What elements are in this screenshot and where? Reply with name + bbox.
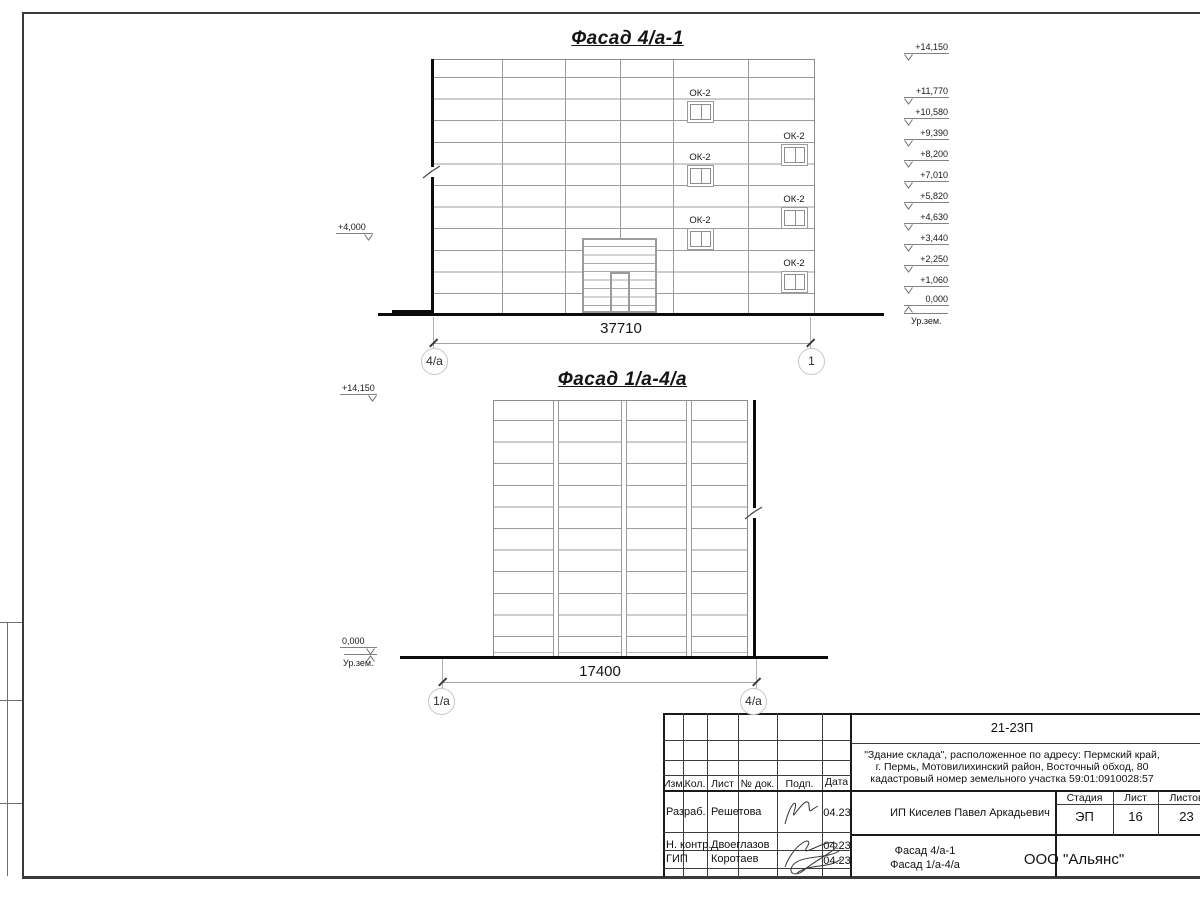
titleblock-border — [663, 713, 665, 877]
person-name: Решетова — [711, 806, 761, 818]
elevation-mark: 0,000 — [904, 293, 949, 306]
elevation-arrow-icon — [904, 119, 913, 126]
grid-line — [673, 60, 674, 313]
elevation-mark: +4,630 — [904, 211, 949, 224]
project-code: 21-23П — [851, 720, 1173, 735]
elevation-mark: +8,200 — [904, 148, 949, 161]
elevation-arrow-icon — [904, 98, 913, 105]
address-line: "Здание склада", расположенное по адресу… — [853, 749, 1171, 761]
elevation-arrow-icon — [904, 182, 913, 189]
elevation-mark: +9,390 — [904, 127, 949, 140]
dimension-text: 17400 — [540, 663, 660, 680]
elevation-arrow-icon — [904, 245, 913, 252]
sheet-label: Лист — [1113, 792, 1158, 804]
elevation-mark: +14,150 — [340, 382, 377, 395]
elevation-arrow-icon — [904, 140, 913, 147]
grid-line — [502, 60, 503, 313]
sheet-frame-left — [22, 12, 24, 878]
col-header: № док. — [738, 778, 777, 790]
date: 04.23 — [823, 807, 851, 819]
axis-bubble: 4/а — [740, 688, 767, 715]
window-tag: ОК-2 — [683, 152, 717, 163]
elevation-mark: +1,060 — [904, 274, 949, 287]
elevation-arrow-icon — [368, 395, 377, 402]
elevation-arrow-icon — [364, 234, 373, 241]
titleblock-line — [851, 743, 1200, 744]
pilaster — [686, 401, 692, 656]
margin-stamp-line — [0, 622, 22, 623]
axis-bubble: 1/а — [428, 688, 455, 715]
col-header: Лист — [707, 778, 738, 790]
stage-label: Стадия — [1056, 792, 1113, 804]
window-tag: ОК-2 — [683, 88, 717, 99]
role-label: Н. контр. — [666, 839, 711, 851]
titleblock-line — [663, 760, 851, 761]
window-tag: ОК-2 — [777, 258, 811, 269]
col-header: Кол. — [683, 778, 707, 790]
window-tag: ОК-2 — [777, 194, 811, 205]
role-label: Разраб. — [666, 806, 706, 818]
sheet-number: 16 — [1113, 809, 1158, 824]
elevation-arrow-icon — [904, 161, 913, 168]
elevation-arrow-icon — [904, 306, 913, 313]
window-tag: ОК-2 — [777, 131, 811, 142]
pilaster — [553, 401, 559, 656]
window — [687, 228, 714, 250]
gate-wicket-door — [610, 272, 630, 313]
window — [781, 207, 808, 229]
elevation-mark: +7,010 — [904, 169, 949, 182]
axis-bubble: 4/а — [421, 348, 448, 375]
margin-stamp-line — [0, 803, 22, 804]
elevation-arrow-icon — [904, 224, 913, 231]
elevation-arrow-icon — [904, 203, 913, 210]
margin-stamp-line — [7, 622, 8, 876]
sheets-total: 23 — [1158, 809, 1200, 824]
address-line: г. Пермь, Мотовилихинский район, Восточн… — [853, 761, 1171, 773]
building-corner-line — [431, 59, 435, 313]
titleblock-line — [851, 834, 1200, 836]
window — [687, 101, 714, 123]
role-label: ГИП — [666, 853, 688, 865]
ground-line — [400, 656, 828, 660]
signature — [777, 833, 849, 877]
ground-line — [378, 313, 884, 317]
sheet-title-line2: Фасад 1/а-4/а — [851, 859, 999, 871]
elevation-mark: +3,440 — [904, 232, 949, 245]
titleblock-border — [663, 713, 1200, 715]
facade2-title: Фасад 1/а-4/а — [510, 369, 735, 391]
elevation-mark: +14,150 — [904, 41, 949, 54]
ground-mark-line — [904, 313, 948, 314]
sheet-frame-bottom — [22, 876, 1200, 879]
client-name: ИП Киселев Павел Аркадьевич — [870, 807, 1070, 819]
window — [687, 165, 714, 187]
elevation-mark: +10,580 — [904, 106, 949, 119]
grid-line — [565, 60, 566, 313]
window — [781, 271, 808, 293]
facade2-view — [493, 400, 748, 656]
elevation-arrow-icon — [904, 266, 913, 273]
grid-line — [748, 60, 749, 313]
break-symbol — [422, 164, 442, 180]
elevation-mark: 0,000 — [340, 635, 377, 648]
ground-level-label: Ур.зем. — [911, 316, 942, 326]
break-symbol — [744, 505, 764, 521]
titleblock-line — [707, 713, 708, 877]
person-name: Двоеглазов — [711, 839, 769, 851]
col-header: Изм. — [663, 778, 683, 790]
stage-value: ЭП — [1056, 809, 1113, 824]
col-header: Дата — [822, 776, 851, 788]
dimension-line — [433, 343, 811, 344]
signature — [779, 794, 821, 831]
address-line: кадастровый номер земельного участка 59:… — [853, 773, 1171, 785]
building-corner-line — [753, 400, 757, 656]
elevation-mark: +11,770 — [904, 85, 949, 98]
elevation-mark: +2,250 — [904, 253, 949, 266]
elevation-mark: +5,820 — [904, 190, 949, 203]
company-name: ООО "Альянс" — [1000, 851, 1148, 868]
elevation-mark: +4,000 — [336, 221, 373, 234]
sheet-title-line1: Фасад 4/а-1 — [851, 845, 999, 857]
sheets-label: Листов — [1158, 792, 1200, 804]
project-address: "Здание склада", расположенное по адресу… — [853, 749, 1171, 785]
elevation-arrow-icon — [904, 54, 913, 61]
dimension-text: 37710 — [561, 320, 681, 337]
person-name: Коротаев — [711, 853, 759, 865]
facade1-title: Фасад 4/а-1 — [515, 28, 740, 50]
dimension-line — [442, 682, 757, 683]
sheet-frame-top — [22, 12, 1200, 14]
drawing-sheet: Фасад 4/а-1 ОК-2 ОК-2 ОК-2 ОК-2 ОК-2 ОК-… — [0, 0, 1200, 900]
window — [781, 144, 808, 166]
window-tag: ОК-2 — [683, 215, 717, 226]
ground-level-label: Ур.зем. — [343, 658, 374, 668]
col-header: Подп. — [777, 778, 822, 790]
pilaster — [621, 401, 627, 656]
ground-mark-line — [344, 654, 377, 655]
titleblock-line — [663, 740, 851, 741]
margin-stamp-line — [0, 700, 22, 701]
axis-bubble: 1 — [798, 348, 825, 375]
titleblock-line — [1056, 804, 1200, 805]
